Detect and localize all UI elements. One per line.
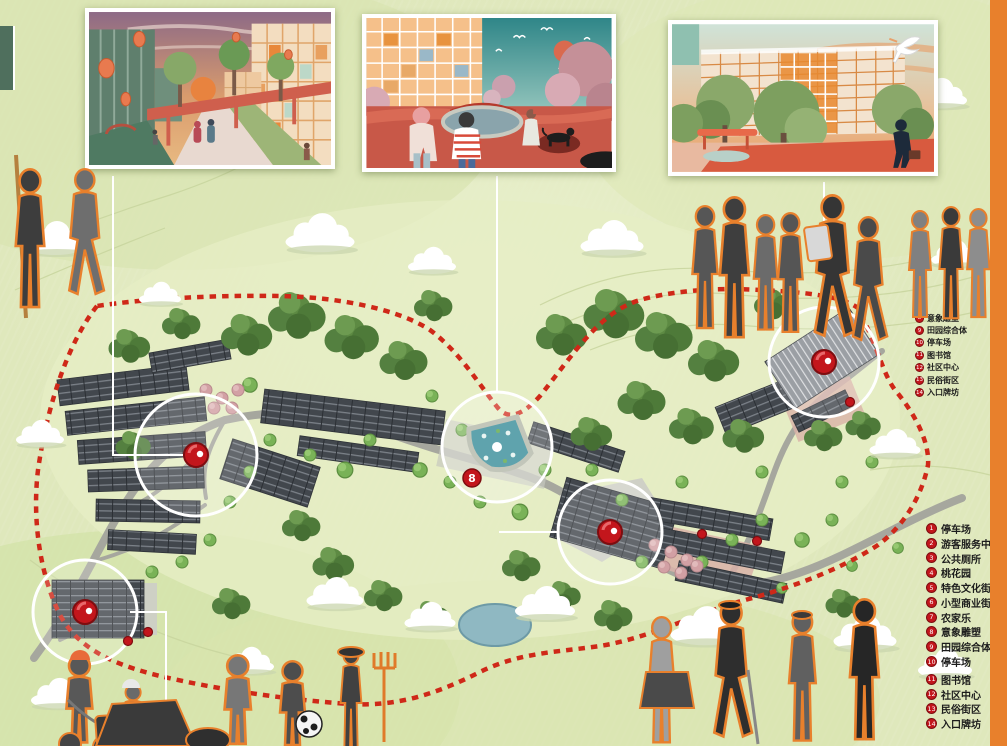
masterplan-board: 8 <box>0 0 1007 746</box>
legend-number-badge: 1 <box>926 523 937 534</box>
legend-number-badge: 8 <box>926 626 937 637</box>
legend-number-badge: 12 <box>915 363 924 372</box>
legend-item: 12社区中心 <box>915 362 967 374</box>
legend-number-badge: 12 <box>926 689 937 700</box>
legend-number-badge: 14 <box>915 388 924 397</box>
legend-number-badge: 5 <box>926 582 937 593</box>
svg-text:8: 8 <box>468 472 476 485</box>
legend-number-badge: 3 <box>926 552 937 563</box>
orange-side-bar <box>990 0 1007 746</box>
legend-number-badge: 6 <box>926 597 937 608</box>
callout-pond: 8 <box>442 392 552 502</box>
legend-item: 10停车场 <box>915 337 967 349</box>
callout-village <box>135 394 257 516</box>
legend-item: 11图书馆 <box>915 349 967 361</box>
legend-number-badge: 2 <box>926 538 937 549</box>
callout-street <box>558 480 662 584</box>
legend-number-badge: 11 <box>926 674 937 685</box>
legend-number-badge: 13 <box>926 703 937 714</box>
render-street-scene <box>85 8 335 169</box>
legend-number-badge: 8 <box>915 314 924 323</box>
legend-number-badge: 10 <box>926 656 937 667</box>
render-building-complex <box>668 20 938 176</box>
callout-entry <box>33 560 137 664</box>
legend-item: 13民俗街区 <box>915 374 967 386</box>
sun <box>191 77 216 102</box>
legend-top: 8意象雕塑 9田园综合体 10停车场 11图书馆 12社区中心 13民俗街区 1… <box>915 312 967 399</box>
pond-number-badge: 8 <box>463 469 481 487</box>
legend-item: 14入口牌坊 <box>915 386 967 398</box>
legend-number-badge: 11 <box>915 351 924 360</box>
legend-number-badge: 9 <box>915 326 924 335</box>
legend-number-badge: 7 <box>926 612 937 623</box>
callout-parking <box>769 307 879 417</box>
legend-item: 9田园综合体 <box>915 324 967 336</box>
legend-number-badge: 10 <box>915 338 924 347</box>
edge-image-fragment <box>0 26 15 90</box>
legend-number-badge: 9 <box>926 641 937 652</box>
legend-number-badge: 4 <box>926 567 937 578</box>
legend-number-badge: 14 <box>926 718 937 729</box>
legend-item: 8意象雕塑 <box>915 312 967 324</box>
legend-number-badge: 13 <box>915 376 924 385</box>
render-pond-plaza <box>362 14 616 172</box>
